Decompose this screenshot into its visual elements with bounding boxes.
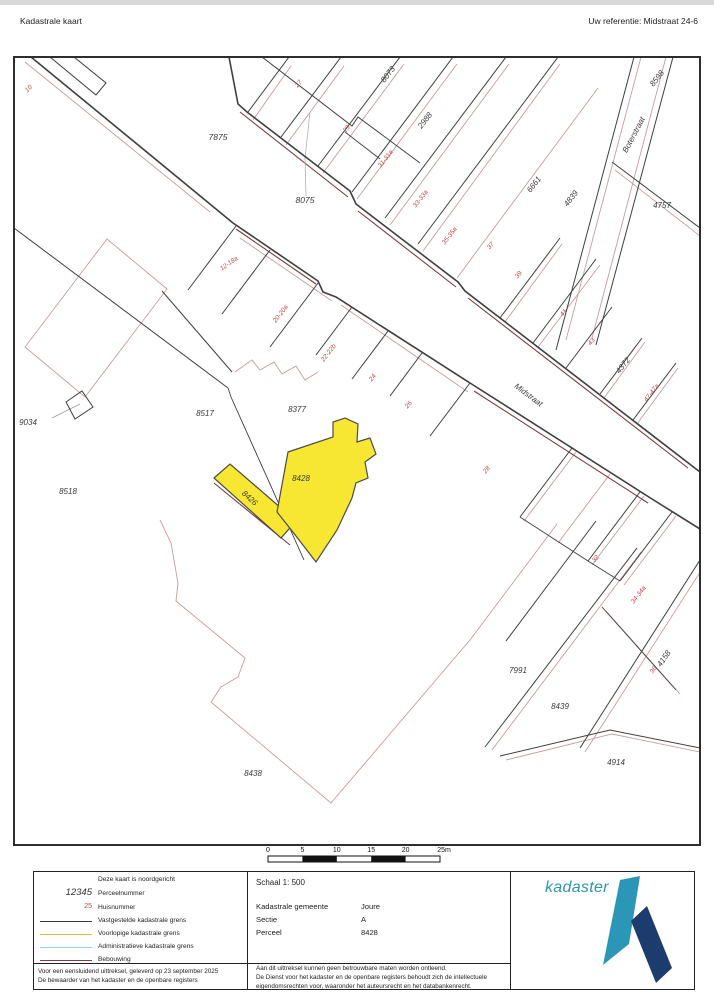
parcel-number-7991: 7991: [509, 666, 527, 675]
parcel-number-4757: 4757: [653, 201, 671, 210]
legend-footer-2: De bewaarder van het kadaster en de open…: [38, 977, 198, 984]
panel-divider-1: [247, 872, 248, 989]
parcel-number-8517: 8517: [196, 409, 214, 418]
kadaster-logo-text: kadaster: [545, 879, 609, 897]
scale-tick-10: 10: [333, 847, 341, 854]
parcel-number-8377: 8377: [288, 405, 306, 414]
parcel-number-8518: 8518: [59, 487, 77, 496]
perceel-value: 8428: [361, 928, 378, 937]
scale-tick-0: 0: [266, 847, 270, 854]
legend-parcelnumber-sample: 12345: [40, 887, 92, 898]
scale-tick-5: 5: [300, 847, 304, 854]
parcel-number-8075: 8075: [296, 195, 315, 205]
legend-line-administratieve: [40, 947, 92, 948]
legend-parcelnumber-label: Perceelnummer: [98, 890, 145, 897]
info-note-2: De Dienst voor het kadaster en de openba…: [256, 974, 487, 981]
parcel-number-4914: 4914: [607, 758, 625, 767]
legend-voorlopige-label: Voorlopige kadastrale grens: [98, 930, 180, 937]
page: { "page": { "title_left": "Kadastrale ka…: [0, 0, 714, 1000]
scale-tick-25m: 25m: [437, 847, 451, 854]
legend-line-voorlopige: [40, 934, 92, 935]
gemeente-label: Kadastrale gemeente: [256, 902, 328, 911]
legend-housenumber-label: Huisnummer: [98, 904, 135, 911]
info-note-3: eigendomsrechten voor, waaronder het aut…: [256, 983, 472, 990]
sectie-label: Sectie: [256, 915, 277, 924]
legend-bebouwing-label: Bebouwing: [98, 956, 131, 963]
legend-footer-1: Voor een eensluidend uittreksel, gelever…: [38, 968, 218, 975]
scale-tick-15: 15: [367, 847, 375, 854]
scale-tick-20: 20: [402, 847, 410, 854]
north-note: Deze kaart is noordgericht: [98, 876, 175, 883]
parcel-number-7875: 7875: [209, 132, 228, 142]
info-note-1: Aan dit uittreksel kunnen geen betrouwba…: [256, 965, 447, 972]
parcel-number-8438: 8438: [244, 769, 262, 778]
legend-vastgestelde-label: Vastgestelde kadastrale grens: [98, 917, 186, 924]
parcel-number-8428: 8428: [292, 474, 310, 483]
cadastral-map: 7875807580732988859847576661483943729034…: [0, 0, 714, 1000]
legend-line-vastgestelde: [40, 921, 92, 922]
sectie-value: A: [361, 915, 366, 924]
perceel-label: Perceel: [256, 928, 282, 937]
legend-housenumber-sample: 25: [40, 903, 92, 910]
panel-divider-2: [510, 872, 511, 989]
scale-bar: [268, 856, 440, 862]
info-panel: Deze kaart is noordgericht 12345 Perceel…: [33, 871, 695, 990]
schaal-text: Schaal 1: 500: [256, 878, 305, 887]
parcel-number-8439: 8439: [551, 702, 569, 711]
parcel-number-9034: 9034: [19, 418, 37, 427]
gemeente-value: Joure: [361, 902, 380, 911]
legend-administratieve-label: Administratieve kadastrale grens: [98, 943, 194, 950]
legend-line-bebouwing: [40, 960, 92, 961]
scale-bar-numbers: 0510152025m: [266, 847, 451, 854]
panel-divider-h: [34, 963, 510, 964]
